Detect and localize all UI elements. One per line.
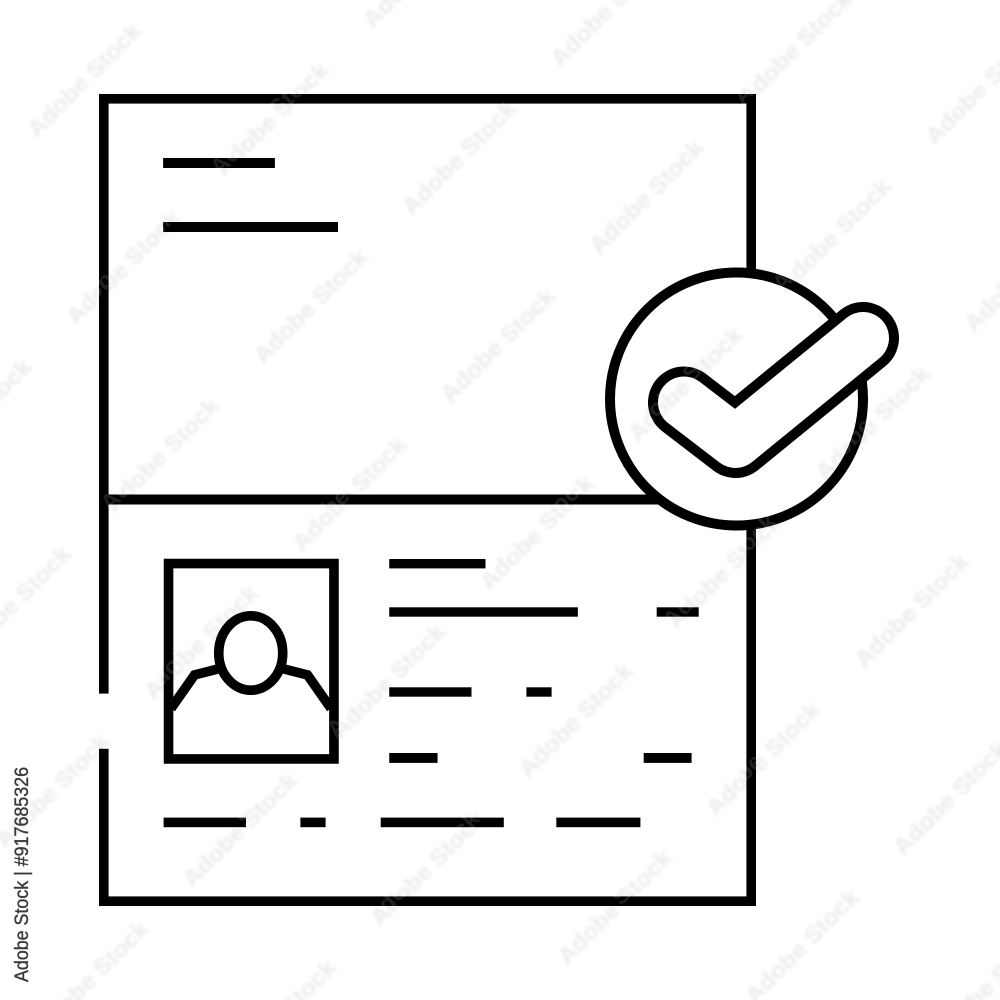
svg-text:Adobe Stock | #917685326: Adobe Stock | #917685326 — [12, 767, 33, 982]
